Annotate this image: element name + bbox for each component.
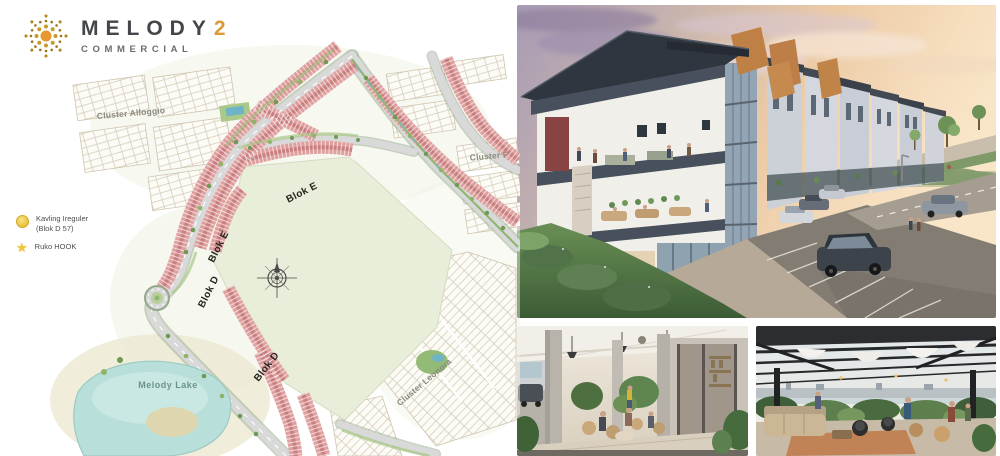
legend-item-kavling: Kavling Ireguler (Blok D 57) (16, 214, 88, 234)
roundabout (145, 286, 169, 310)
legend-ruko-label: Ruko HOOK (35, 242, 77, 252)
legend-item-ruko: ★ Ruko HOOK (16, 242, 88, 253)
mandala-logo-icon (22, 12, 70, 60)
photo-building-cutaway-render (517, 5, 996, 318)
ruko-star-icon: ★ (16, 242, 28, 253)
legend-kavling-line1: Kavling Ireguler (36, 214, 88, 223)
brand-name: MELODY (81, 17, 213, 41)
photo-rooftop-terrace-render (756, 326, 996, 456)
kavling-circle-icon (16, 215, 29, 228)
label-melody-lake: Melody Lake (138, 380, 198, 390)
brochure-canvas: MELODY 2 COMMERCIAL Kavling Ireguler (Bl… (0, 0, 1000, 456)
melody-lake-water (74, 361, 231, 456)
brand-number: 2 (214, 17, 226, 41)
photo-arcade-cafe-render (517, 326, 748, 456)
brand-subtitle: COMMERCIAL (81, 44, 226, 55)
map-legend: Kavling Ireguler (Blok D 57) ★ Ruko HOOK (16, 214, 88, 253)
brand-logo: MELODY 2 COMMERCIAL (22, 12, 226, 60)
legend-kavling-line2: (Blok D 57) (36, 224, 74, 233)
